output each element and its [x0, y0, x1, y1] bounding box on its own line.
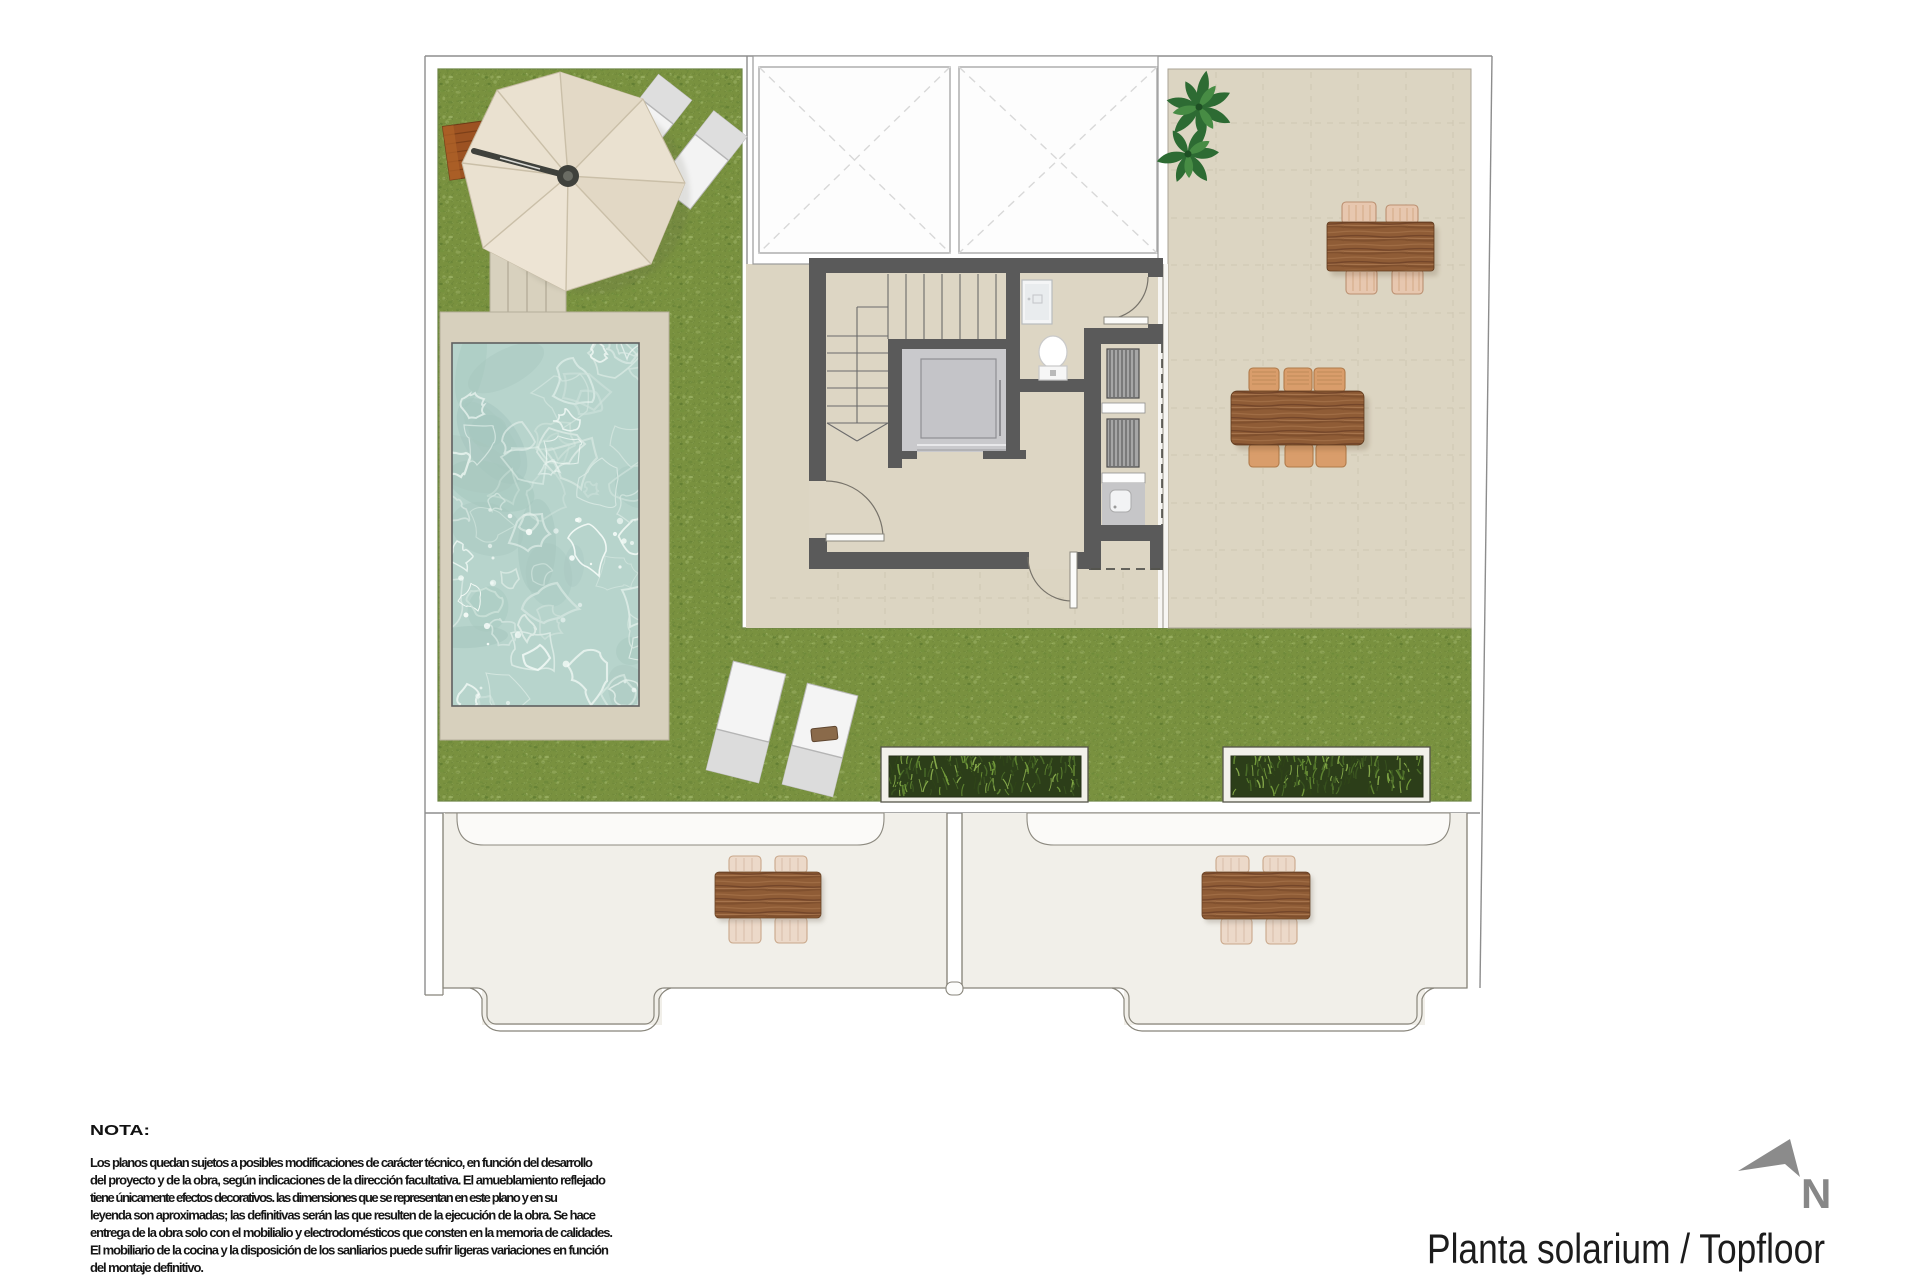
svg-text:entrega de la obra solo con el: entrega de la obra solo con el mobiliali…: [90, 1225, 613, 1240]
svg-text:del montaje definitivo.: del montaje definitivo.: [90, 1260, 204, 1275]
svg-text:del proyecto y de la obra, seg: del proyecto y de la obra, según indicac…: [90, 1173, 606, 1188]
svg-text:NOTA:: NOTA:: [90, 1122, 150, 1139]
svg-text:N: N: [1801, 1170, 1831, 1217]
svg-text:tiene únicamente efectos decor: tiene únicamente efectos decorativos. la…: [90, 1190, 558, 1205]
svg-text:Los planos quedan sujetos a po: Los planos quedan sujetos a posibles mod…: [90, 1155, 593, 1170]
svg-text:El mobiliario de la cocina y l: El mobiliario de la cocina y la disposic…: [90, 1243, 609, 1258]
svg-text:Planta solarium / Topfloor: Planta solarium / Topfloor: [1427, 1225, 1825, 1272]
svg-text:leyenda son aproximadas; las d: leyenda son aproximadas; las definitivas…: [90, 1208, 596, 1223]
